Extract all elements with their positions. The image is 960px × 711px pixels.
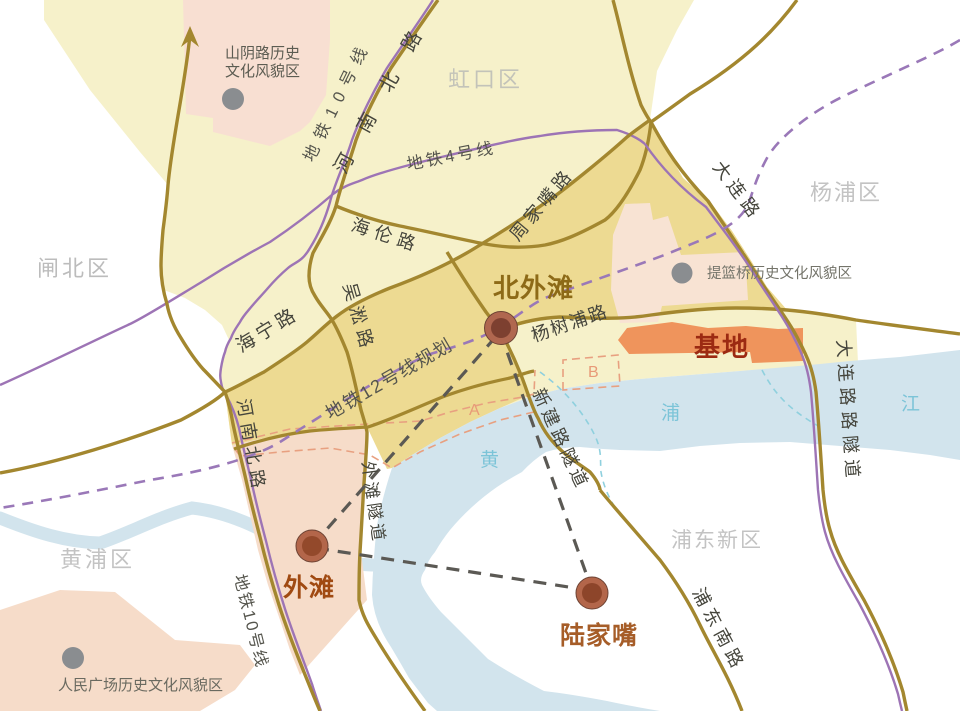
svg-text:基地: 基地: [694, 332, 750, 362]
svg-text:江: 江: [901, 393, 920, 415]
svg-text:外滩: 外滩: [283, 573, 335, 602]
svg-text:杨浦区: 杨浦区: [810, 180, 882, 205]
svg-text:黄浦区: 黄浦区: [60, 547, 135, 572]
svg-text:虹口区: 虹口区: [448, 67, 523, 92]
svg-text:B: B: [588, 364, 599, 381]
svg-text:北外滩: 北外滩: [493, 273, 574, 303]
svg-text:黄: 黄: [480, 449, 499, 471]
svg-text:浦: 浦: [661, 402, 680, 424]
svg-text:文化风貌区: 文化风貌区: [225, 63, 300, 80]
svg-text:闸北区: 闸北区: [37, 256, 112, 281]
svg-text:A: A: [469, 402, 480, 419]
svg-text:山阴路历史: 山阴路历史: [225, 45, 300, 62]
svg-text:人民广场历史文化风貌区: 人民广场历史文化风貌区: [58, 677, 223, 694]
svg-text:浦东新区: 浦东新区: [671, 529, 763, 552]
svg-text:提篮桥历史文化风貌区: 提篮桥历史文化风貌区: [707, 264, 852, 282]
svg-text:陆家嘴: 陆家嘴: [560, 621, 638, 650]
